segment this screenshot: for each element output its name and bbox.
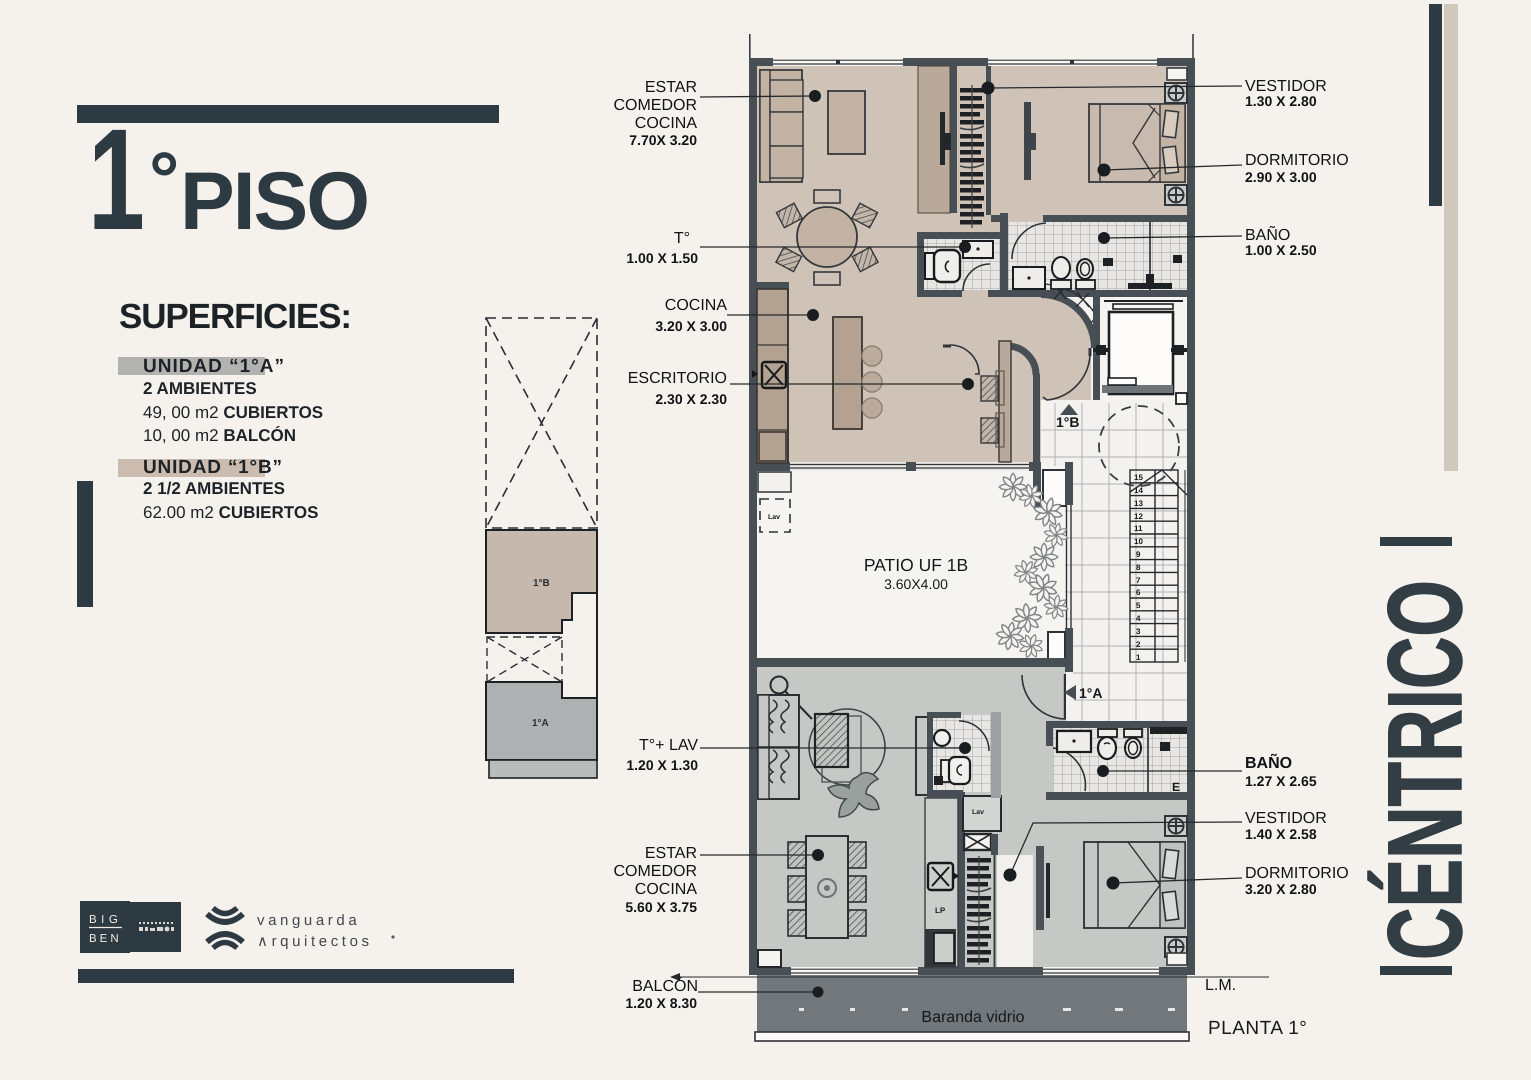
svg-text:1.30 X 2.80: 1.30 X 2.80 [1245,93,1317,109]
svg-text:1.00 X 1.50: 1.00 X 1.50 [626,250,698,266]
svg-text:8: 8 [1136,563,1141,572]
svg-text:1°B: 1°B [1056,414,1080,430]
svg-text:E: E [1172,780,1180,794]
svg-text:1.27 X 2.65: 1.27 X 2.65 [1245,773,1317,789]
svg-text:2 AMBIENTES: 2 AMBIENTES [143,379,257,398]
svg-text:1.20 X 8.30: 1.20 X 8.30 [625,995,697,1011]
svg-text:PATIO UF 1B: PATIO UF 1B [864,555,968,575]
svg-text:°: ° [149,137,179,222]
svg-text:5: 5 [1136,601,1141,610]
svg-text:ESCRITORIO: ESCRITORIO [628,370,727,387]
svg-text:1.40 X 2.58: 1.40 X 2.58 [1245,826,1317,842]
svg-text:PLANTA 1°: PLANTA 1° [1208,1018,1307,1039]
svg-text:13: 13 [1134,499,1143,508]
svg-text:BEN: BEN [89,933,122,945]
svg-text:DORMITORIO: DORMITORIO [1245,152,1349,169]
svg-text:1: 1 [1136,653,1141,662]
svg-text:2 1/2 AMBIENTES: 2 1/2 AMBIENTES [143,479,285,498]
svg-text:3.20 X 3.00: 3.20 X 3.00 [655,318,727,334]
svg-text:COMEDOR: COMEDOR [613,863,697,880]
svg-text:SUPERFICIES:: SUPERFICIES: [119,297,352,336]
svg-text:ESTAR: ESTAR [645,79,697,96]
svg-text:COCINA: COCINA [635,115,698,132]
svg-text:CÉNTRICO: CÉNTRICO [1367,580,1484,960]
svg-text:1°B: 1°B [533,578,550,589]
svg-text:15: 15 [1134,473,1143,482]
svg-text:10, 00 m2 BALCÓN: 10, 00 m2 BALCÓN [143,425,296,445]
svg-text:3.60X4.00: 3.60X4.00 [884,576,948,592]
svg-text:T°+ LAV: T°+ LAV [639,737,698,754]
svg-text:Lav: Lav [768,514,780,521]
svg-text:2: 2 [1136,640,1141,649]
svg-text:14: 14 [1134,486,1143,495]
svg-text:3.20 X 2.80: 3.20 X 2.80 [1245,881,1317,897]
svg-text:T°: T° [674,230,690,247]
svg-text:6: 6 [1136,588,1141,597]
svg-text:BIG: BIG [89,914,122,926]
svg-text:2.90 X 3.00: 2.90 X 3.00 [1245,169,1317,185]
svg-text:7: 7 [1136,576,1141,585]
svg-text:1°A: 1°A [1079,685,1103,701]
svg-text:1: 1 [88,99,145,260]
svg-text:49, 00 m2 CUBIERTOS: 49, 00 m2 CUBIERTOS [143,403,323,422]
svg-text:LP: LP [935,906,946,915]
svg-text:1.20 X 1.30: 1.20 X 1.30 [626,757,698,773]
svg-text:1°A: 1°A [532,718,549,729]
svg-text:3: 3 [1136,627,1141,636]
svg-text:4: 4 [1136,614,1141,623]
svg-text:Baranda vidrio: Baranda vidrio [921,1009,1024,1026]
svg-text:ESTAR: ESTAR [645,845,697,862]
svg-text:7.70X 3.20: 7.70X 3.20 [629,132,697,148]
svg-text:11: 11 [1134,524,1143,533]
svg-text:COCINA: COCINA [665,297,728,314]
svg-text:∧rquitectos: ∧rquitectos [257,933,373,950]
svg-text:5.60 X 3.75: 5.60 X 3.75 [625,899,697,915]
svg-text:UNIDAD “1°B”: UNIDAD “1°B” [143,457,282,478]
svg-text:DORMITORIO: DORMITORIO [1245,865,1349,882]
svg-text:9: 9 [1136,550,1141,559]
svg-text:vanguarda: vanguarda [257,912,360,929]
svg-text:PISO: PISO [180,156,370,247]
svg-text:BAÑO: BAÑO [1245,753,1292,772]
svg-text:2.30 X 2.30: 2.30 X 2.30 [655,391,727,407]
svg-text:L.M.: L.M. [1205,977,1236,994]
svg-text:Lav: Lav [972,809,984,816]
svg-text:VESTIDOR: VESTIDOR [1245,810,1327,827]
svg-text:12: 12 [1134,512,1143,521]
svg-text:10: 10 [1134,537,1143,546]
svg-text:UNIDAD “1°A”: UNIDAD “1°A” [143,356,284,377]
svg-text:62.00 m2 CUBIERTOS: 62.00 m2 CUBIERTOS [143,503,318,522]
svg-text:BALCÓN: BALCÓN [632,977,698,995]
svg-text:1.00 X 2.50: 1.00 X 2.50 [1245,242,1317,258]
svg-text:COCINA: COCINA [635,881,698,898]
svg-text:COMEDOR: COMEDOR [613,97,697,114]
